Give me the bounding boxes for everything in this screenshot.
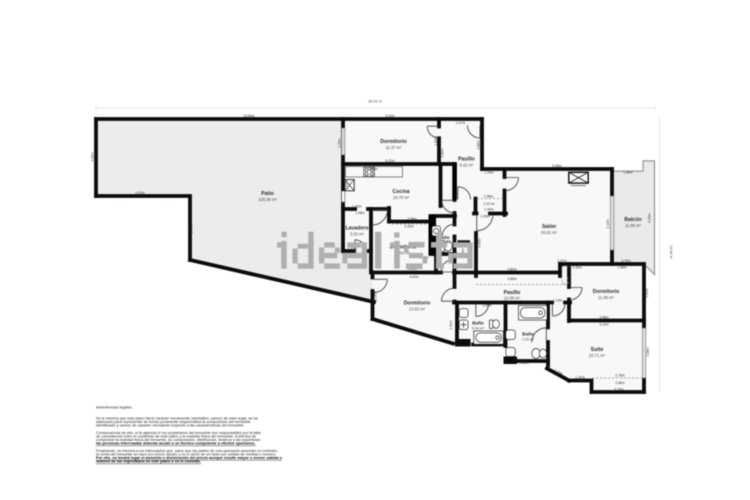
svg-text:1.51m: 1.51m bbox=[449, 320, 453, 329]
svg-text:18.70 m²: 18.70 m² bbox=[393, 195, 410, 200]
svg-text:3.43m: 3.43m bbox=[645, 288, 649, 297]
svg-text:las personas interesadas deber: las personas interesadas deberán acudir … bbox=[96, 442, 256, 446]
svg-text:número de los expresados en es: número de los expresados en este plano o… bbox=[96, 460, 201, 464]
svg-text:Advertencias legales:: Advertencias legales: bbox=[96, 406, 133, 410]
svg-text:1.20m: 1.20m bbox=[575, 376, 584, 380]
svg-text:4.22m: 4.22m bbox=[135, 191, 144, 195]
svg-text:1.60m: 1.60m bbox=[352, 205, 361, 209]
svg-text:4.05m: 4.05m bbox=[646, 347, 650, 356]
svg-text:8.77m: 8.77m bbox=[257, 275, 267, 281]
svg-text:1.86m: 1.86m bbox=[623, 171, 632, 175]
svg-text:26.91 m²: 26.91 m² bbox=[541, 230, 558, 235]
svg-text:1.98m: 1.98m bbox=[484, 195, 493, 199]
svg-text:2.78m: 2.78m bbox=[615, 374, 624, 378]
svg-text:2.49m: 2.49m bbox=[482, 304, 491, 308]
svg-text:1.02 m²: 1.02 m² bbox=[483, 202, 495, 206]
svg-text:1.07m: 1.07m bbox=[456, 121, 465, 125]
svg-text:Baño: Baño bbox=[522, 332, 534, 337]
svg-text:20.71 m²: 20.71 m² bbox=[589, 353, 606, 358]
svg-text:6.25m: 6.25m bbox=[648, 213, 652, 222]
svg-text:5.46m: 5.46m bbox=[552, 164, 561, 168]
svg-text:4.12m: 4.12m bbox=[599, 323, 608, 327]
svg-text:11.96 m²: 11.96 m² bbox=[625, 223, 641, 228]
svg-text:3.79m: 3.79m bbox=[621, 259, 630, 263]
svg-text:2.28m: 2.28m bbox=[519, 361, 528, 365]
svg-text:identificado y carece de carác: identificado y carece de carácter vincul… bbox=[96, 423, 245, 427]
svg-text:106.06 m²: 106.06 m² bbox=[258, 197, 277, 202]
svg-text:Baño: Baño bbox=[472, 321, 484, 326]
svg-text:1.43m: 1.43m bbox=[345, 180, 349, 189]
svg-text:1.96m: 1.96m bbox=[617, 266, 626, 270]
svg-text:0.76m: 0.76m bbox=[614, 388, 623, 392]
svg-text:30.41 m: 30.41 m bbox=[368, 99, 382, 103]
svg-text:2.19m: 2.19m bbox=[404, 225, 413, 229]
svg-text:2.30m: 2.30m bbox=[572, 266, 581, 270]
svg-text:4.86m: 4.86m bbox=[477, 140, 481, 149]
svg-text:4.66m: 4.66m bbox=[507, 277, 516, 281]
svg-text:10.08 m²: 10.08 m² bbox=[504, 296, 521, 301]
svg-text:5.22m: 5.22m bbox=[385, 159, 394, 163]
svg-text:5.22m: 5.22m bbox=[385, 114, 394, 118]
svg-text:16.84 m: 16.84 m bbox=[669, 245, 673, 259]
svg-text:5.04 m²: 5.04 m² bbox=[472, 327, 485, 331]
svg-text:11.86 m²: 11.86 m² bbox=[598, 295, 614, 300]
svg-text:4.40m: 4.40m bbox=[478, 238, 482, 247]
svg-text:2.20m: 2.20m bbox=[557, 259, 566, 263]
svg-text:3.10m: 3.10m bbox=[606, 219, 610, 228]
svg-text:1.46m: 1.46m bbox=[190, 224, 194, 233]
svg-text:13.02 m²: 13.02 m² bbox=[409, 307, 426, 312]
svg-text:3.02 m²: 3.02 m² bbox=[350, 232, 365, 237]
svg-text:2.86m: 2.86m bbox=[615, 381, 624, 385]
svg-text:3.45m: 3.45m bbox=[338, 138, 342, 147]
svg-text:2.98m: 2.98m bbox=[441, 148, 445, 157]
svg-text:3.98m: 3.98m bbox=[599, 316, 608, 320]
svg-text:1.13m: 1.13m bbox=[553, 299, 562, 303]
svg-text:23.84m: 23.84m bbox=[244, 114, 255, 118]
svg-text:1.08m: 1.08m bbox=[355, 211, 364, 215]
svg-text:4.40m: 4.40m bbox=[368, 167, 377, 171]
svg-text:3.26m: 3.26m bbox=[374, 291, 378, 300]
svg-text:11.37 m²: 11.37 m² bbox=[386, 145, 402, 150]
svg-text:1.05m: 1.05m bbox=[480, 215, 489, 219]
svg-text:7.20 m²: 7.20 m² bbox=[522, 338, 535, 342]
svg-text:4.42m: 4.42m bbox=[409, 275, 418, 279]
svg-text:2.58m: 2.58m bbox=[407, 217, 416, 221]
svg-text:1.86m: 1.86m bbox=[434, 136, 438, 145]
svg-text:9.22 m²: 9.22 m² bbox=[460, 163, 475, 168]
svg-text:1.34m: 1.34m bbox=[484, 171, 493, 175]
svg-text:4.80m: 4.80m bbox=[507, 268, 516, 272]
svg-text:3.06m: 3.06m bbox=[347, 295, 356, 299]
svg-text:1.40m: 1.40m bbox=[484, 208, 493, 212]
svg-text:4.28m: 4.28m bbox=[91, 152, 95, 161]
